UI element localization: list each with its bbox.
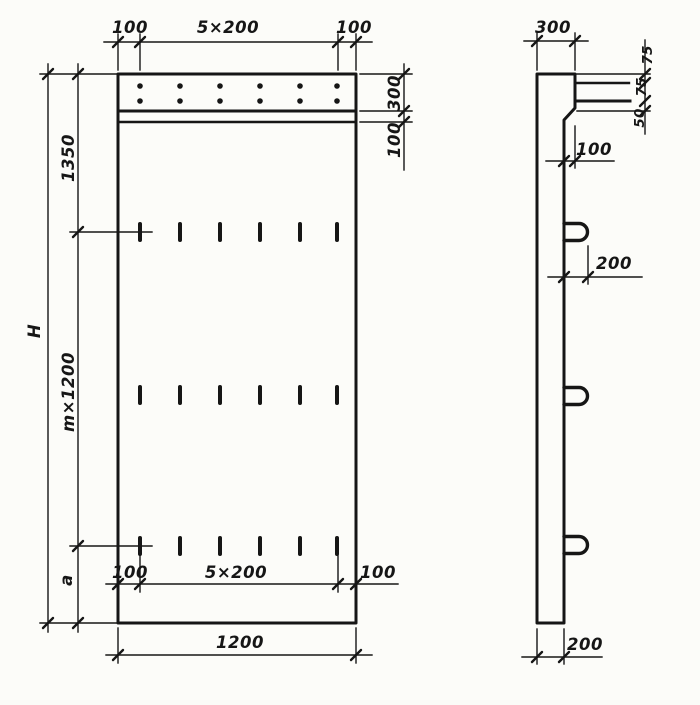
dim-ledge-offset: 100: [546, 126, 614, 168]
dim-label-ledge-offset: 100: [576, 140, 612, 159]
dim-top-width: 100 5×200 100: [104, 18, 372, 70]
dim-label-lip-height: 100: [385, 122, 404, 158]
dim-top-band: 300 100: [360, 64, 412, 170]
dim-label-bottom-section: a: [57, 574, 76, 586]
dim-bottom-spacing: 100 5×200 100: [106, 556, 398, 592]
dim-label-chain-top: 75: [640, 45, 656, 64]
lifting-loop: [564, 388, 588, 405]
dim-left-heights: H 1350 m×1200 a: [25, 64, 152, 632]
dim-label-middle-section: m×1200: [59, 352, 78, 432]
concrete-panel-drawing: 100 5×200 100 300 100: [0, 0, 700, 700]
dim-label-bottom-left-offset: 100: [112, 563, 148, 582]
anchor-dot: [177, 98, 183, 104]
dim-panel-thickness: 200: [522, 629, 603, 664]
anchor-dot: [334, 83, 340, 89]
dim-label-band-height: 300: [385, 75, 404, 111]
slot-marks-row-1: [140, 224, 337, 240]
anchor-dot: [297, 98, 303, 104]
dim-label-profile-top-width: 300: [535, 18, 571, 37]
side-profile-view: 300 75 75 50 100 200: [522, 18, 656, 664]
dim-label-top-right-offset: 100: [336, 18, 372, 37]
anchor-dot: [137, 98, 143, 104]
dim-label-top-left-offset: 100: [112, 18, 148, 37]
dim-label-top-section: 1350: [59, 134, 78, 182]
dim-profile-top-width: 300: [524, 18, 588, 70]
dim-label-overall-width: 1200: [216, 633, 264, 652]
anchor-dot: [257, 98, 263, 104]
slot-marks-row-2: [140, 387, 337, 403]
anchor-dot: [257, 83, 263, 89]
dim-overall-width: 1200: [106, 628, 372, 663]
anchor-dots: [137, 83, 340, 104]
dim-edge-chain: 75 75 50: [632, 40, 656, 134]
dim-label-overall-height: H: [25, 324, 44, 338]
dim-label-panel-thickness: 200: [567, 635, 603, 654]
anchor-dot: [297, 83, 303, 89]
dim-label-bottom-right-offset: 100: [360, 563, 396, 582]
anchor-dot: [137, 83, 143, 89]
dim-label-top-spacing: 5×200: [197, 18, 259, 37]
dim-label-chain-bottom: 50: [632, 108, 648, 127]
anchor-dot: [217, 98, 223, 104]
dim-label-bottom-spacing: 5×200: [205, 563, 267, 582]
dim-label-loop-offset: 200: [596, 254, 632, 273]
dim-label-chain-middle: 75: [634, 77, 650, 96]
anchor-dot: [217, 83, 223, 89]
dim-loop-offset: 200: [548, 246, 642, 284]
panel-face: [118, 74, 356, 623]
front-elevation-view: 100 5×200 100 300 100: [25, 18, 412, 663]
drawing-sheet: 100 5×200 100 300 100: [0, 0, 700, 700]
slot-marks-row-3: [140, 538, 337, 554]
anchor-dot: [334, 98, 340, 104]
anchor-dot: [177, 83, 183, 89]
lifting-loop: [564, 537, 587, 554]
lifting-loop: [564, 224, 588, 241]
